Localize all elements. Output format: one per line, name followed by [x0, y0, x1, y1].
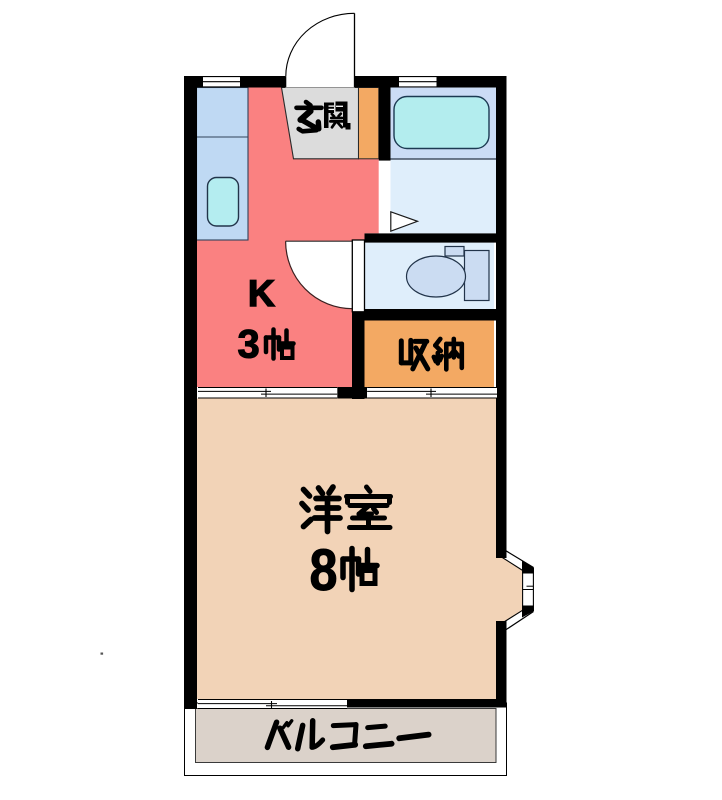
svg-text:3: 3 [238, 323, 260, 367]
svg-text:8: 8 [310, 538, 338, 603]
svg-text:K: K [248, 273, 275, 314]
